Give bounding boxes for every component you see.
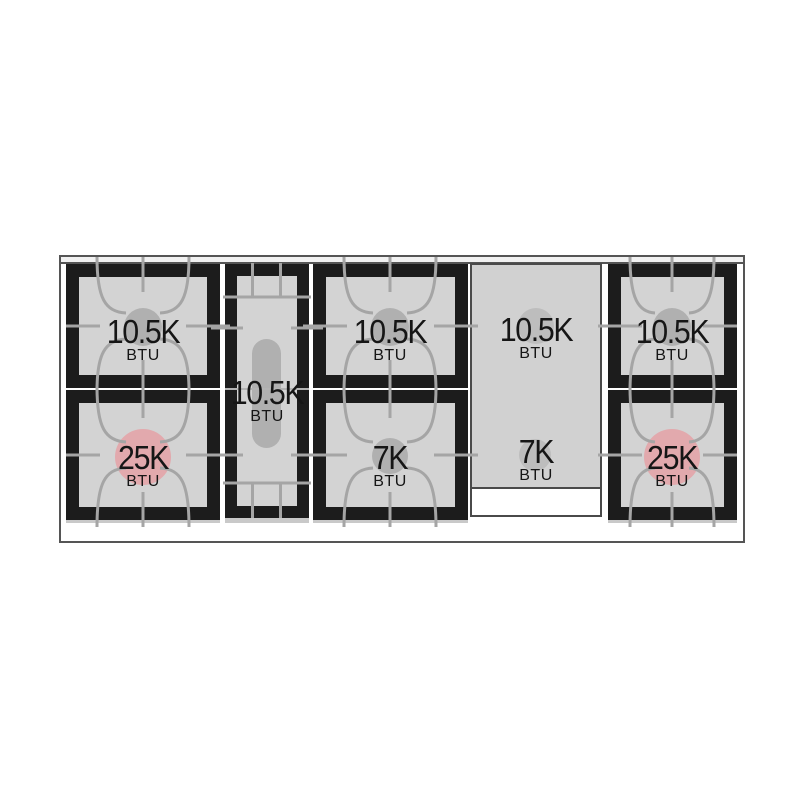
- cooktop-spec-image: 10.5K BTU 25K BTU 10.5K BTU 10.5K BTU 7K…: [0, 0, 800, 800]
- btu-value: 7K: [326, 439, 455, 476]
- btu-value: 10.5K: [203, 374, 332, 411]
- btu-label: 25K BTU: [73, 439, 213, 490]
- section-edge: [66, 520, 220, 523]
- btu-value: 25K: [79, 439, 208, 476]
- btu-value: 7K: [472, 433, 601, 470]
- btu-value: 25K: [608, 439, 737, 476]
- btu-label: 10.5K BTU: [602, 313, 742, 364]
- btu-value: 10.5K: [326, 313, 455, 350]
- back-trim-strip: [59, 255, 745, 264]
- btu-label: 10.5K BTU: [320, 313, 460, 364]
- section-edge: [225, 518, 309, 523]
- btu-value: 10.5K: [79, 313, 208, 350]
- section-edge: [608, 520, 737, 523]
- btu-value: 10.5K: [472, 311, 601, 348]
- btu-label: 10.5K BTU: [73, 313, 213, 364]
- btu-label: 7K BTU: [320, 439, 460, 490]
- btu-label: 10.5K BTU: [197, 374, 337, 425]
- btu-label: 7K BTU: [466, 433, 606, 484]
- section-edge: [313, 520, 468, 523]
- griddle-tray-slot: [472, 487, 600, 515]
- btu-label: 10.5K BTU: [466, 311, 606, 362]
- btu-label: 25K BTU: [602, 439, 742, 490]
- btu-value: 10.5K: [608, 313, 737, 350]
